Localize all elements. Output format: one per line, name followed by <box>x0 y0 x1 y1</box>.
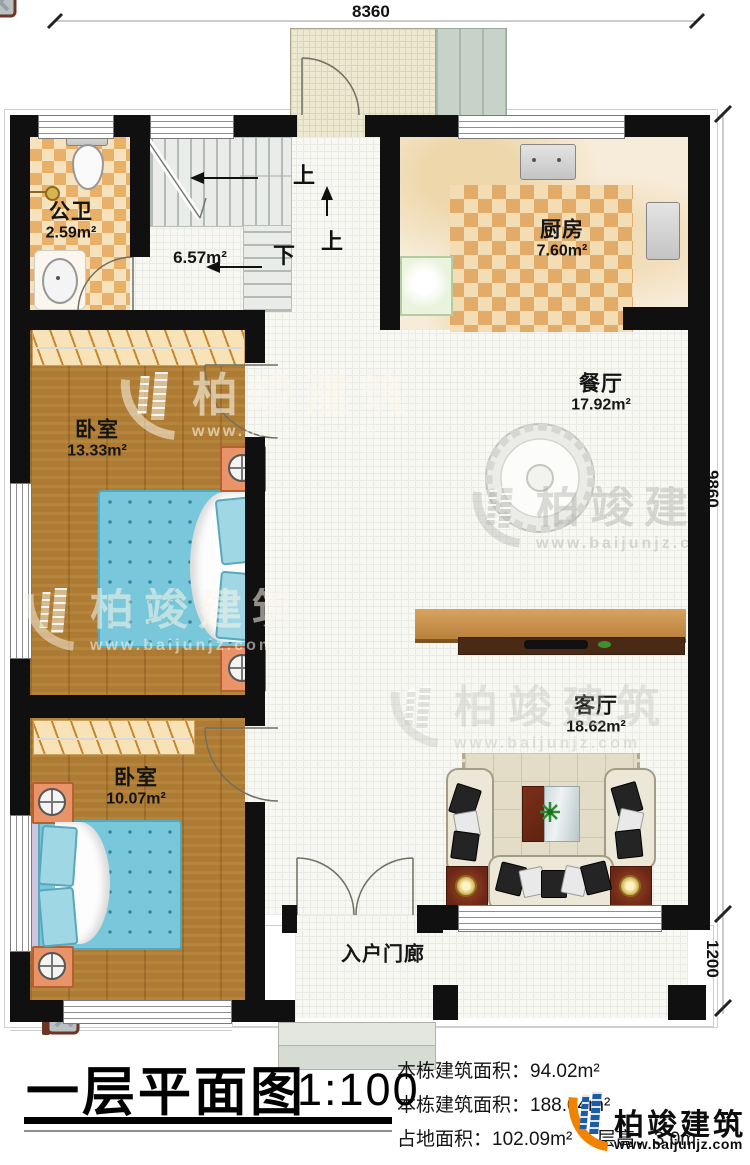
window <box>63 1000 232 1024</box>
porch-pillar <box>668 985 706 1020</box>
wall <box>10 310 265 330</box>
wall <box>688 115 710 930</box>
window <box>10 815 32 952</box>
window <box>150 115 234 139</box>
dim-right-main: 9860 <box>702 470 722 508</box>
window <box>38 115 114 139</box>
wall <box>130 115 150 257</box>
wall <box>245 330 265 363</box>
wall <box>623 307 710 330</box>
wall <box>230 1000 295 1022</box>
wall <box>282 905 297 933</box>
wall <box>232 115 297 137</box>
stair-up-label-1: 上 <box>293 158 315 190</box>
title-underline-thin <box>24 1130 392 1132</box>
room-label-porch: 入户门廊 <box>341 944 425 967</box>
plan-svg-layer <box>0 0 750 1165</box>
window <box>458 115 625 139</box>
dim-right-porch: 1200 <box>702 940 722 978</box>
info-line-1: 本栋建筑面积：94.02m² <box>397 1056 600 1083</box>
stair-up-label-2: 上 <box>321 224 343 256</box>
dining-table <box>486 424 594 532</box>
scale-label: 1:100 <box>297 1064 420 1116</box>
window <box>458 905 662 932</box>
wall <box>365 115 458 137</box>
room-label-kitchen: 厨房 7.60m² <box>537 219 588 262</box>
brand-logo-icon <box>566 1092 610 1150</box>
title-underline <box>24 1117 392 1124</box>
wall <box>443 905 458 930</box>
plant-icon <box>540 802 560 822</box>
room-label-dining: 餐厅 17.92m² <box>571 373 631 416</box>
wall <box>245 718 265 726</box>
wall <box>660 905 710 930</box>
wall <box>10 657 30 815</box>
wall <box>10 1000 63 1022</box>
wall <box>10 115 30 483</box>
stair-down-label: 下 <box>273 238 295 270</box>
porch-pillar <box>433 985 458 1020</box>
window <box>10 483 32 659</box>
room-label-bedroom-upper: 卧室 13.33m² <box>67 419 127 462</box>
brand-url: www.baijunjz.com <box>614 1136 743 1152</box>
dim-top: 8360 <box>352 2 390 22</box>
wall <box>380 115 400 330</box>
page-title: 一层平面图 <box>26 1050 306 1126</box>
room-label-bathroom: 公卫 2.59m² <box>46 201 97 244</box>
wall <box>417 905 443 933</box>
dining-chairs <box>0 0 750 1165</box>
wall <box>245 437 265 695</box>
wall <box>245 802 265 1000</box>
wall <box>10 695 265 718</box>
room-label-bedroom-lower: 卧室 10.07m² <box>106 767 166 810</box>
room-label-stair-hall: 6.57m² <box>173 248 227 268</box>
room-label-living: 客厅 18.62m² <box>566 695 626 738</box>
floor-plan: 公卫 2.59m² 6.57m² 厨房 7.60m² 餐厅 17.92m² 卧室… <box>0 0 750 1165</box>
